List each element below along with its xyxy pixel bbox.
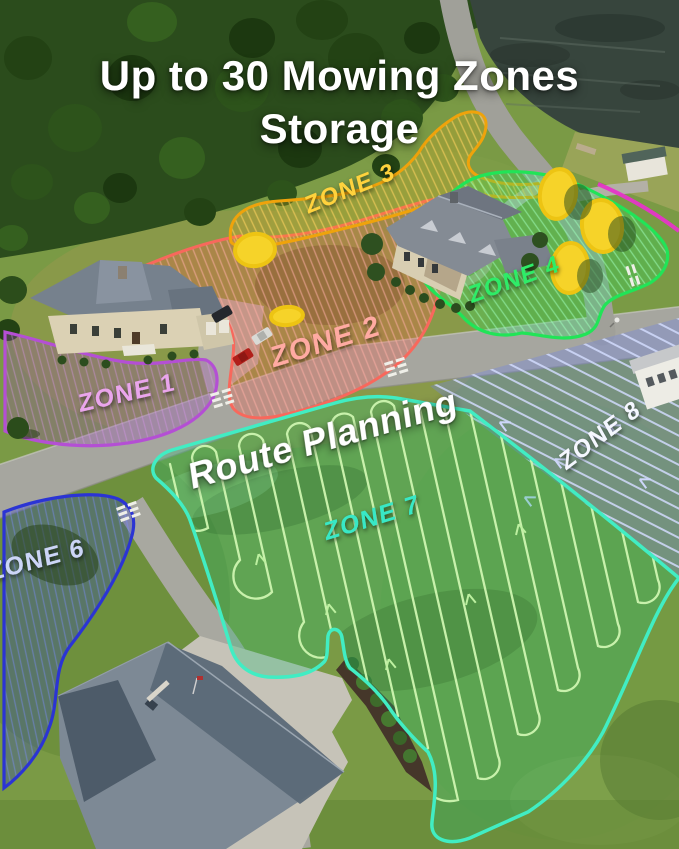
chimney <box>450 192 458 203</box>
headline-line-2: Storage <box>0 103 679 156</box>
flag <box>197 676 203 680</box>
aerial-scene: ZONE 3 ZONE 2 ZONE 1 ZONE 4 ZONE 6 ZONE … <box>0 0 679 849</box>
chimney <box>118 266 127 279</box>
headline-line-1: Up to 30 Mowing Zones <box>0 50 679 103</box>
front-door <box>132 332 140 344</box>
yard-tree <box>7 417 29 439</box>
